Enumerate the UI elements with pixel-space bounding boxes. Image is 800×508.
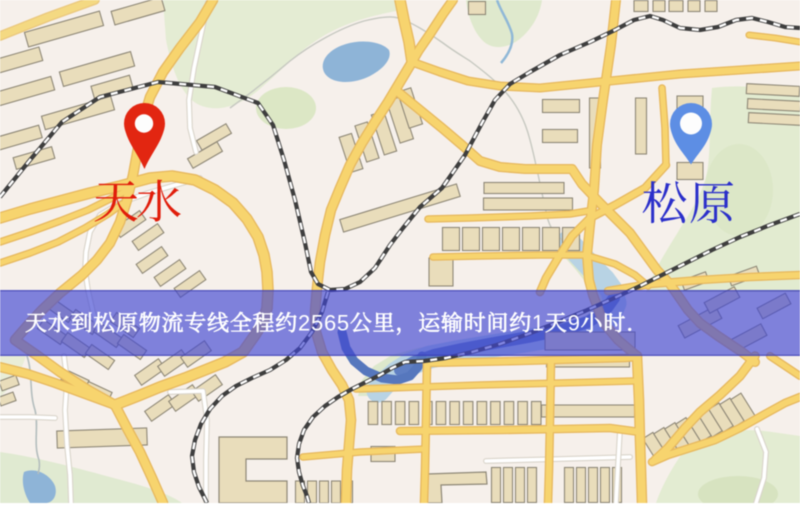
svg-text:1: 1 xyxy=(532,311,544,336)
svg-text:5: 5 xyxy=(311,311,323,336)
svg-text:6: 6 xyxy=(324,311,336,336)
svg-text:5: 5 xyxy=(337,311,349,336)
svg-text:9: 9 xyxy=(568,311,580,336)
svg-text:2: 2 xyxy=(298,311,310,336)
